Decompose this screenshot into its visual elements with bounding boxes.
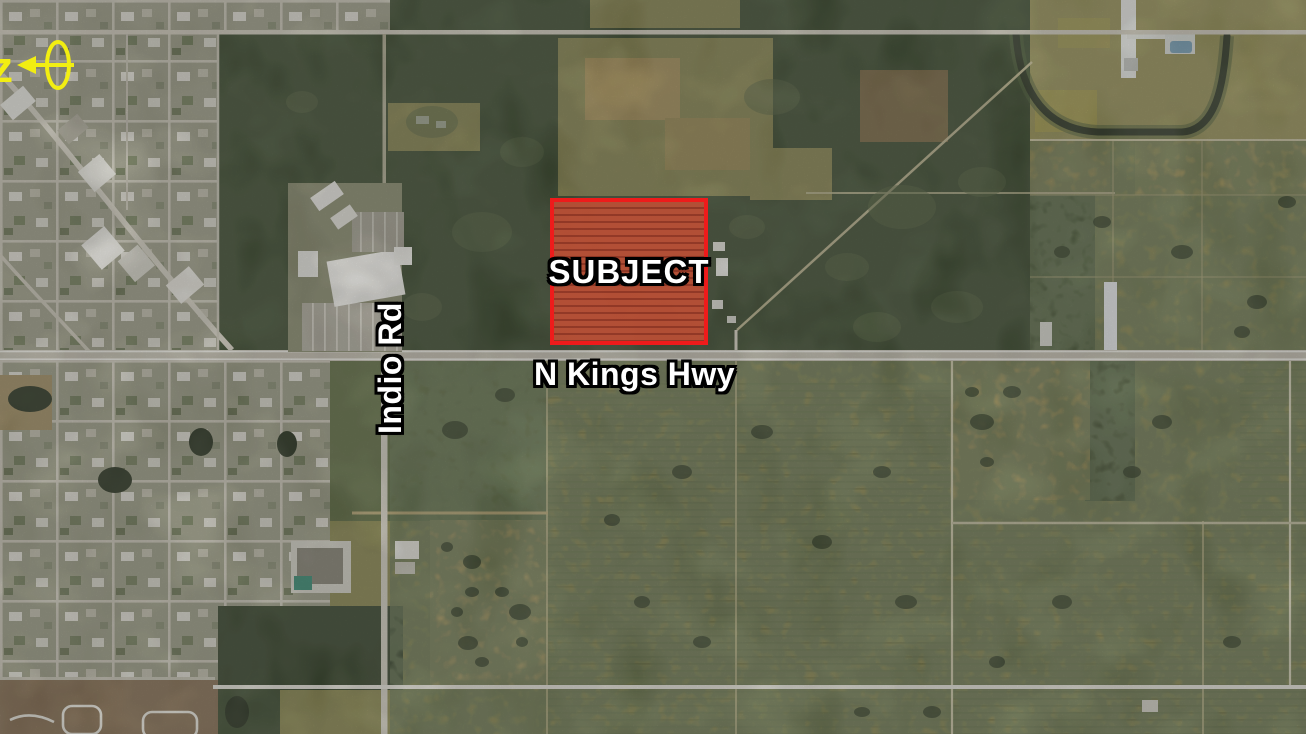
- satellite-imagery: [0, 0, 1306, 734]
- axis-letter: z: [0, 43, 13, 92]
- aerial-map-view: SUBJECT N Kings Hwy Indio Rd z: [0, 0, 1306, 734]
- subject-label: SUBJECT: [548, 253, 709, 291]
- arrowhead: [17, 56, 36, 74]
- subject-parcel-overlay: SUBJECT: [550, 198, 708, 345]
- north-arrow-icon: z: [0, 38, 100, 100]
- photo-texture: [0, 0, 1306, 734]
